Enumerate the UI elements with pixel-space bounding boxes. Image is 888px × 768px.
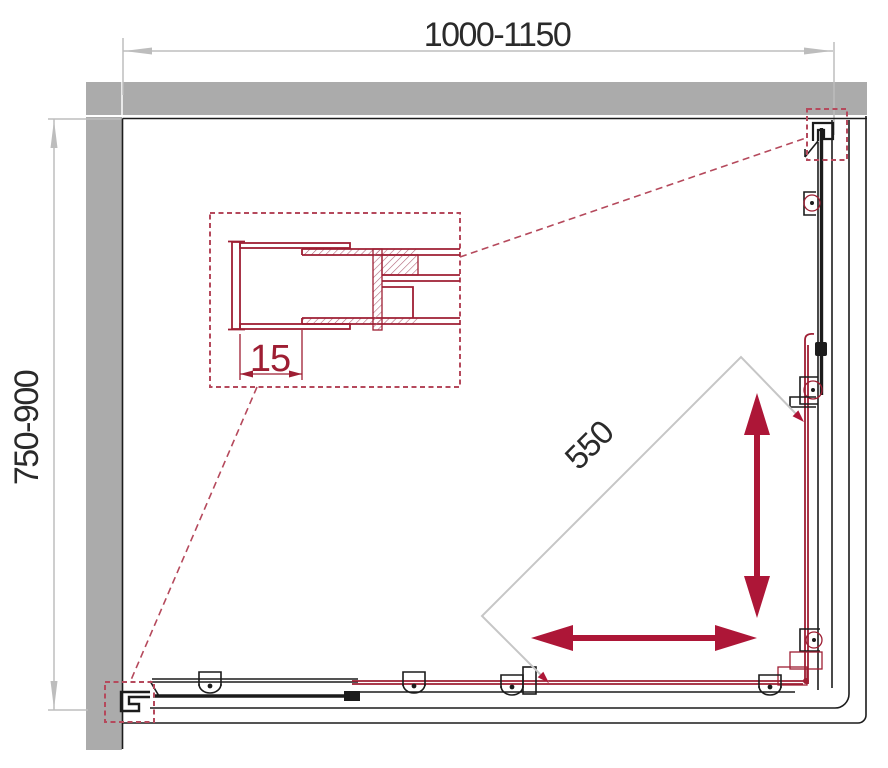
dimension-profile-15: 15 xyxy=(240,330,302,380)
wall-profile-top-right xyxy=(805,123,833,157)
profile-cross-section xyxy=(228,242,460,331)
opening-label: 550 xyxy=(557,413,620,476)
dimension-width: 1000-1150 xyxy=(123,16,834,135)
wall-top xyxy=(86,82,867,115)
slide-arrow-vertical xyxy=(744,393,770,618)
door-handle-right xyxy=(815,342,827,356)
detail-leader-bottom xyxy=(131,387,257,680)
sliding-door-right xyxy=(778,192,827,685)
fixed-panel-bottom xyxy=(150,679,360,701)
wall-profile-bottom-left xyxy=(121,692,150,711)
detail-leader-top xyxy=(460,138,806,257)
width-range-label: 1000-1150 xyxy=(424,16,571,54)
roller-bottom-2 xyxy=(403,672,425,693)
detail-callout: 15 xyxy=(210,213,460,387)
sliding-door-bottom xyxy=(199,667,806,695)
slide-arrow-horizontal xyxy=(531,625,757,651)
shower-enclosure-plan: 1000-1150 750-900 xyxy=(0,0,888,768)
wall-left xyxy=(86,117,122,750)
depth-range-label: 750-900 xyxy=(8,370,46,485)
corner-magnet-profiles xyxy=(778,652,822,685)
profile-width-label: 15 xyxy=(250,338,290,380)
fixed-panel-right xyxy=(818,128,822,690)
